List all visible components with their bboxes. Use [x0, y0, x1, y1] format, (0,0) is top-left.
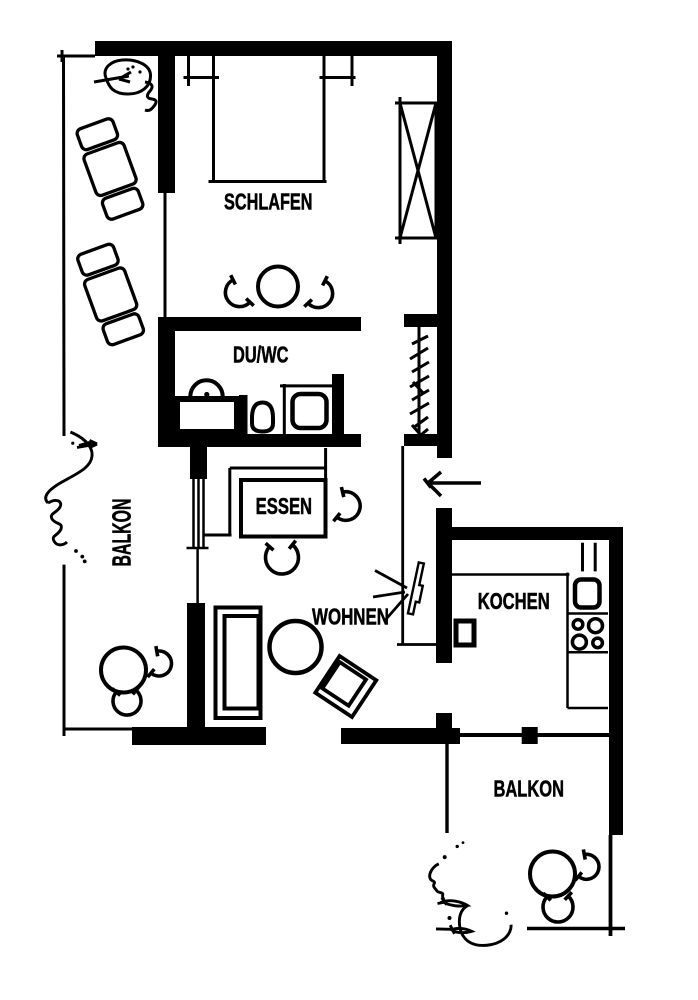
svg-text:ESSEN: ESSEN: [256, 493, 313, 519]
svg-text:BALKON: BALKON: [494, 776, 565, 802]
svg-text:DU/WC: DU/WC: [233, 342, 289, 368]
svg-text:WOHNEN: WOHNEN: [312, 604, 389, 630]
svg-text:SCHLAFEN: SCHLAFEN: [224, 189, 313, 215]
svg-text:KOCHEN: KOCHEN: [478, 588, 550, 614]
svg-text:BALKON: BALKON: [107, 499, 137, 567]
